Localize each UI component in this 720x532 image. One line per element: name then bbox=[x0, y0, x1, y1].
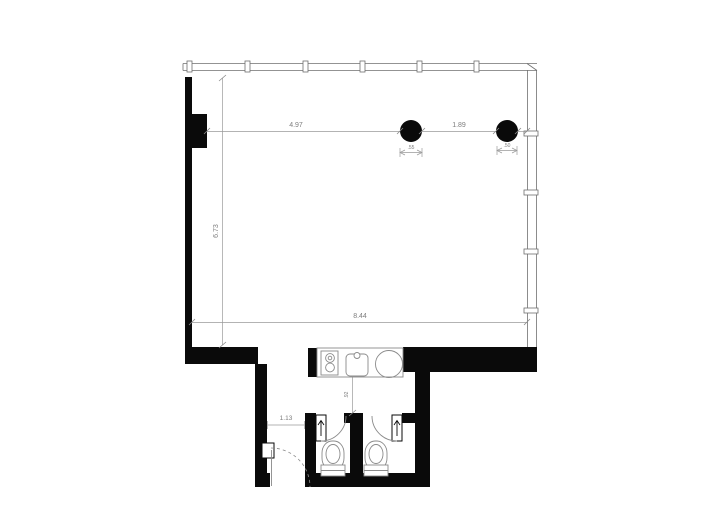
mullion-icon bbox=[524, 308, 538, 313]
mullion-icon bbox=[245, 61, 250, 72]
faucet-icon bbox=[354, 353, 360, 359]
mullion-icon bbox=[303, 61, 308, 72]
dim-label-room-depth: 6.73 bbox=[213, 224, 220, 238]
mullion-icon bbox=[187, 61, 192, 72]
corridor-stall-wall bbox=[305, 413, 316, 475]
toilet-2 bbox=[364, 441, 388, 476]
bottom-right-wall bbox=[403, 347, 537, 372]
entry-door-swing-arc bbox=[271, 448, 310, 487]
mullion-icon bbox=[474, 61, 479, 72]
mullion-icon bbox=[360, 61, 365, 72]
dim-label-service-gap: .92 bbox=[344, 391, 350, 398]
lower-left-wall bbox=[255, 364, 267, 477]
mullion-icon bbox=[417, 61, 422, 72]
stall1-front-stub bbox=[344, 413, 350, 423]
stall2-front-stub bbox=[402, 413, 415, 423]
mullion-icon bbox=[524, 190, 538, 195]
dim-label-pier-to-column: 4.97 bbox=[289, 122, 303, 129]
round-column-2 bbox=[496, 120, 518, 142]
glazed-wall-top bbox=[183, 61, 537, 72]
stall-divider-wall bbox=[350, 413, 363, 475]
wall-cabinet-icon bbox=[262, 443, 274, 458]
mullion-icon bbox=[524, 249, 538, 254]
left-wall-pier bbox=[192, 114, 207, 148]
floor-plan-page: 4.97 1.89 .55 .50 6.73 8.44 1.13 .92 bbox=[0, 0, 720, 532]
bottom-left-wall bbox=[185, 347, 258, 364]
round-column-1 bbox=[400, 120, 422, 142]
glazed-wall-right bbox=[524, 70, 538, 347]
entry-door-stub bbox=[255, 473, 270, 487]
dim-label-room-width: 8.44 bbox=[353, 313, 367, 320]
wc-right-wall bbox=[415, 372, 430, 475]
left-wall bbox=[185, 77, 192, 364]
kitchenette bbox=[317, 348, 403, 378]
dim-label-entry-width: 1.13 bbox=[280, 415, 293, 422]
kitchen-wall-stub bbox=[308, 348, 317, 377]
walls bbox=[185, 77, 537, 487]
dim-label-column2-size: .50 bbox=[504, 143, 511, 149]
dim-label-column-spacing: 1.89 bbox=[452, 122, 466, 129]
floor-plan-drawing: 4.97 1.89 .55 .50 6.73 8.44 1.13 .92 bbox=[0, 0, 720, 532]
dim-label-column1-size: .55 bbox=[408, 145, 415, 151]
glazing-corner-miter bbox=[527, 64, 537, 71]
toilet-1 bbox=[321, 441, 345, 476]
